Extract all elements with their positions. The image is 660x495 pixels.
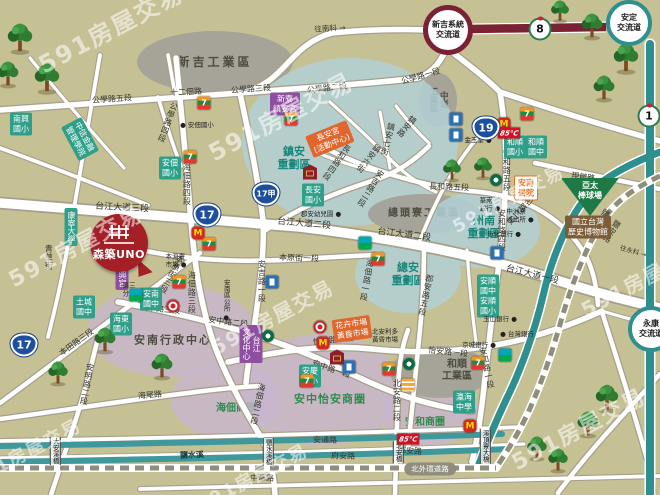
watermark: 591房屋交易 <box>201 62 359 168</box>
watermark: 591房屋交易 <box>0 412 86 493</box>
property-name: 森築UNO <box>93 246 145 262</box>
north-outer-ring-road-pill: 北外環道路 <box>404 463 456 476</box>
watermark: 591房屋交易 <box>31 0 189 80</box>
developer-logo-icon <box>108 224 130 240</box>
watermark: 591房屋交易 <box>447 158 568 239</box>
balloon-body: 森築UNO <box>90 214 148 272</box>
map-canvas: 新吉工業區中崙 工業區鎮安 重劃區總頭寮工業區總安 重劃區州南 重劃區安南行政中… <box>0 0 660 495</box>
watermark: 591房屋交易 <box>505 379 651 477</box>
watermark: 591房屋交易 <box>191 437 312 495</box>
balloon-subtitle-line <box>104 242 134 244</box>
watermark: 591房屋交易 <box>575 233 660 322</box>
watermark: 591房屋交易 <box>205 271 338 360</box>
